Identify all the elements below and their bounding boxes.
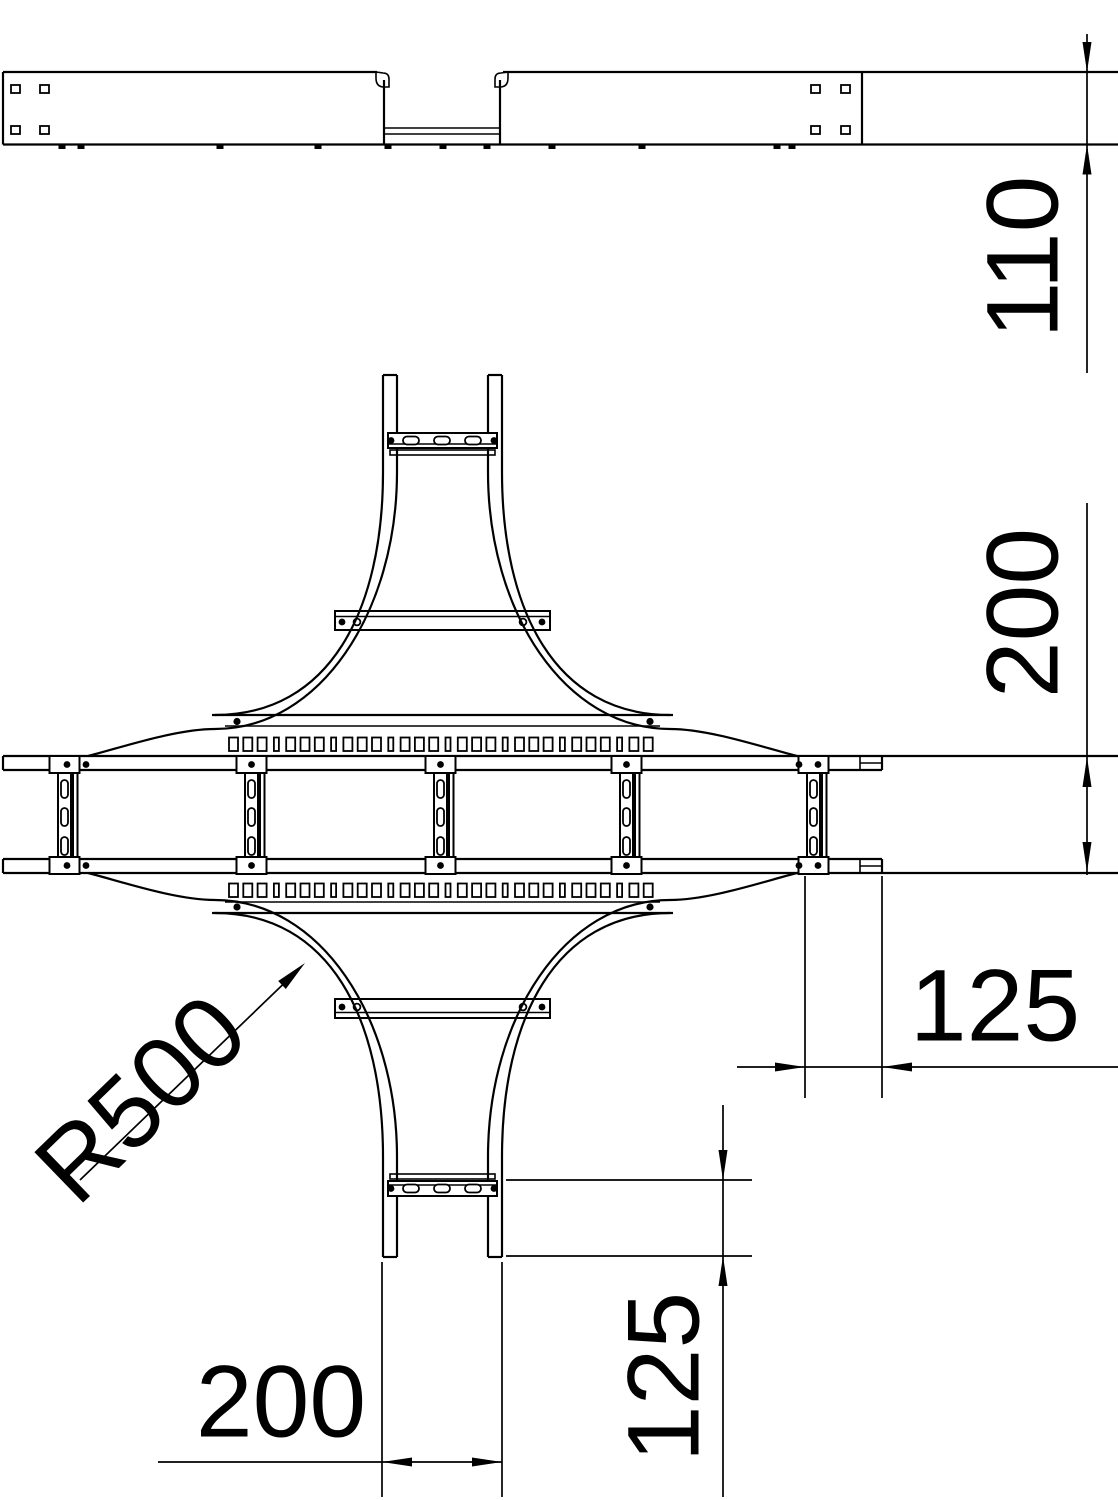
- adjoining-tray-right: [882, 756, 1118, 873]
- dimension-bottom-arm-width: 200: [158, 1262, 502, 1497]
- rail-end-hook-right: [495, 72, 508, 87]
- technical-drawing-page: 110 200 125 125: [0, 0, 1118, 1500]
- dimensions: 110 200 125 125: [13, 34, 1118, 1497]
- dim-label-200-right: 200: [966, 528, 1080, 698]
- side-rail-holes: [11, 85, 850, 134]
- cross-piece-drawing: 110 200 125 125: [0, 0, 1118, 1500]
- dimension-run-width: 200: [966, 503, 1092, 875]
- dimension-right-end-length: 125: [737, 876, 1118, 1098]
- dim-label-200-bottom: 200: [196, 1345, 366, 1459]
- dim-label-r500: R500: [13, 973, 268, 1224]
- radius-callout: R500: [13, 963, 305, 1224]
- dim-label-125-bottom: 125: [607, 1292, 721, 1462]
- dimension-side-height: 110: [966, 34, 1092, 373]
- dimension-bottom-end-length: 125: [506, 1105, 752, 1497]
- dim-label-125-right: 125: [910, 949, 1080, 1063]
- side-view: [3, 72, 1118, 149]
- dim-label-110: 110: [966, 176, 1080, 339]
- run-rungs: [50, 756, 829, 874]
- rail-end-hook-left: [376, 72, 389, 87]
